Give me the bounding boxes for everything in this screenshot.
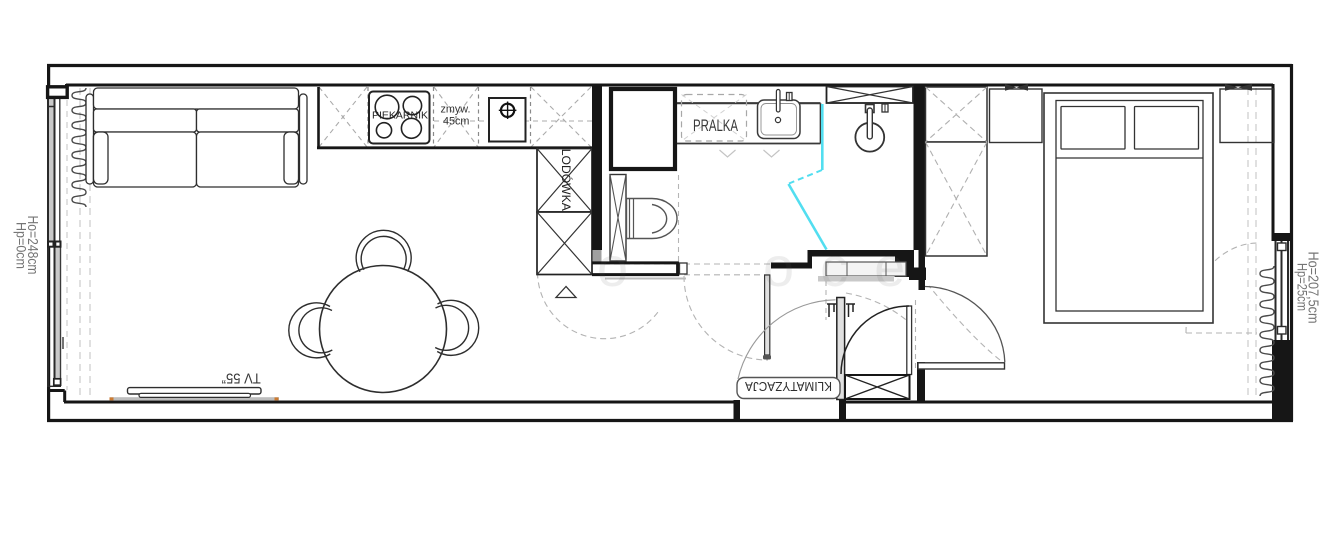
svg-text:Hp=0cm: Hp=0cm: [14, 222, 30, 269]
svg-text:45cm: 45cm: [443, 115, 469, 127]
svg-text:TV 55”: TV 55”: [222, 369, 261, 386]
svg-text:o: o: [597, 235, 628, 298]
svg-text:Hp=25cm: Hp=25cm: [1295, 263, 1311, 311]
svg-text:oce: oce: [763, 235, 931, 298]
svg-text:PRALKA: PRALKA: [693, 117, 738, 135]
svg-text:KLIMATYZACJA: KLIMATYZACJA: [745, 379, 832, 394]
svg-text:PIEKARNIK: PIEKARNIK: [372, 110, 428, 121]
svg-text:zmyw.: zmyw.: [441, 104, 471, 116]
svg-text:LODÓWKA: LODÓWKA: [559, 149, 574, 211]
